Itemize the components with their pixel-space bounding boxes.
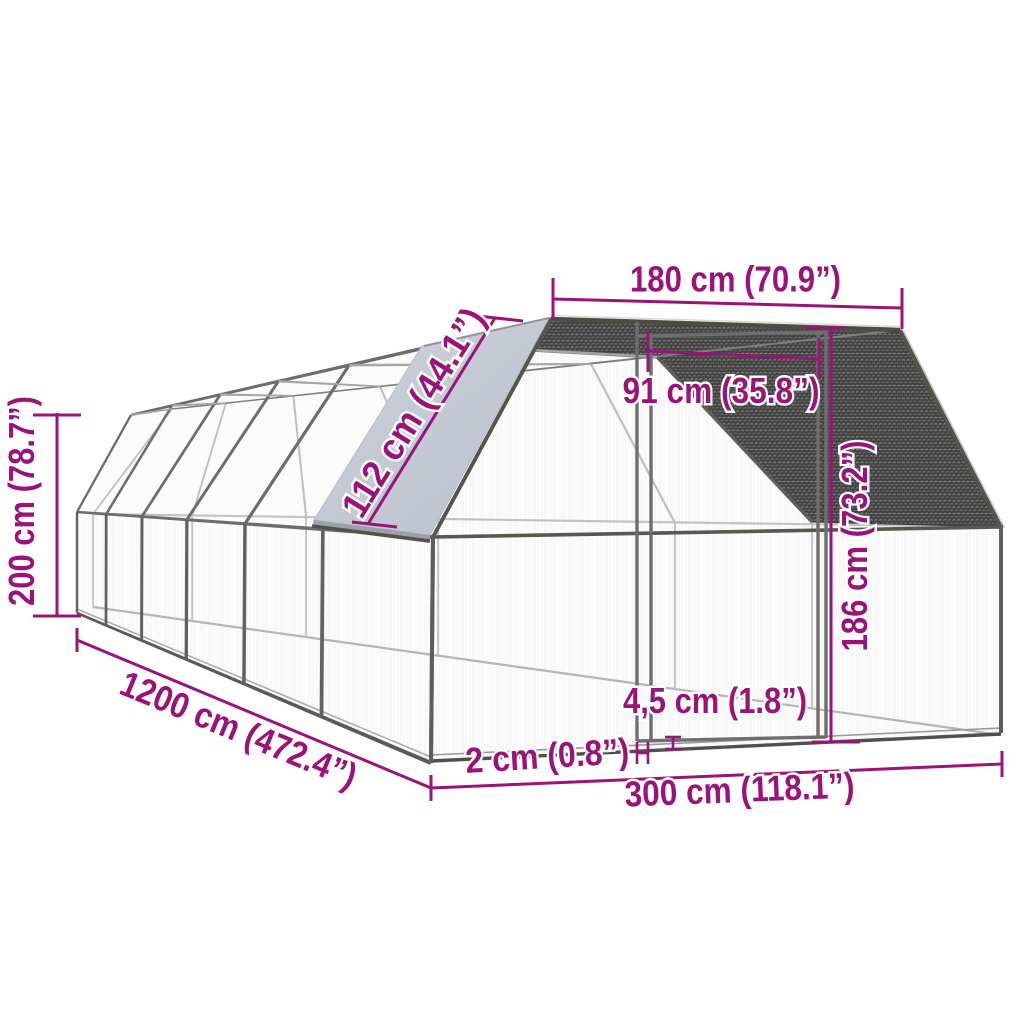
svg-text:4,5 cm (1.8”): 4,5 cm (1.8”) <box>623 680 807 721</box>
svg-text:186 cm (73.2”): 186 cm (73.2”) <box>834 441 875 652</box>
svg-text:180 cm (70.9”): 180 cm (70.9”) <box>630 259 841 300</box>
svg-text:91 cm (35.8”): 91 cm (35.8”) <box>623 370 820 411</box>
svg-text:200 cm (78.7”): 200 cm (78.7”) <box>1 396 42 606</box>
